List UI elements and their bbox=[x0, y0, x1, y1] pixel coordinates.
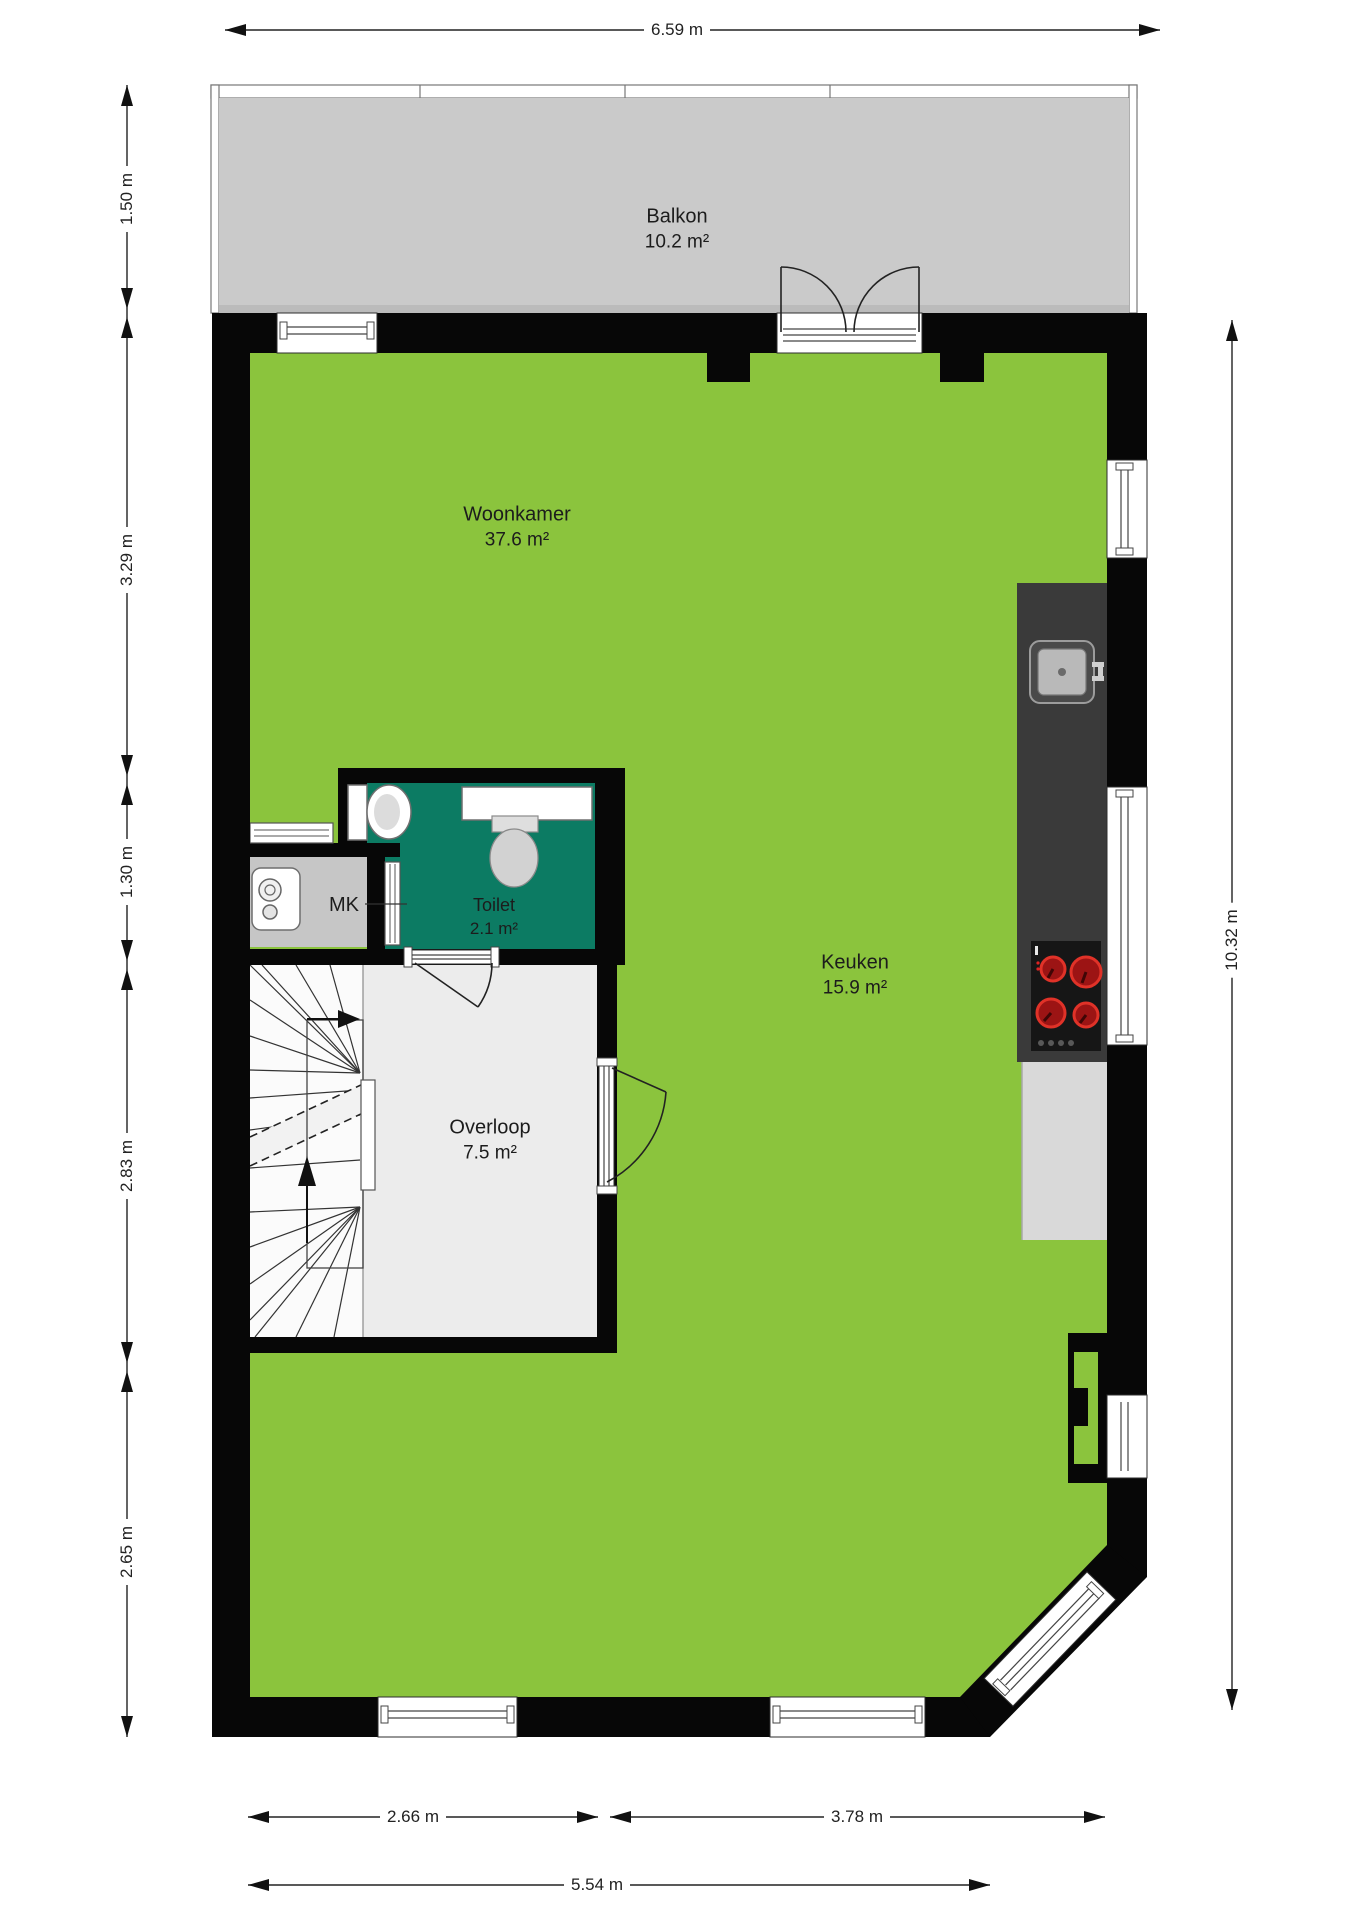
window-right-1 bbox=[1107, 460, 1147, 558]
window-top bbox=[277, 313, 377, 353]
radiator-icon bbox=[250, 823, 333, 843]
boiler-icon bbox=[252, 868, 300, 930]
wall-left bbox=[212, 313, 250, 1737]
balcony-railing-left bbox=[211, 85, 219, 313]
room-area: 10.2 m² bbox=[645, 230, 709, 255]
room-name: Toilet bbox=[470, 894, 518, 918]
room-area: 15.9 m² bbox=[821, 976, 889, 1001]
room-label-balkon: Balkon 10.2 m² bbox=[645, 203, 709, 254]
kitchen-sink-icon bbox=[1030, 641, 1104, 703]
dim-left-1: 1.50 m bbox=[116, 166, 138, 232]
overloop-stairs-block bbox=[250, 965, 597, 1337]
room-label-keuken: Keuken 15.9 m² bbox=[821, 949, 889, 1000]
washbasin-icon bbox=[348, 785, 411, 840]
room-area: 2.1 m² bbox=[470, 918, 518, 940]
window-right-3 bbox=[1107, 1395, 1147, 1478]
room-name: Overloop bbox=[449, 1114, 530, 1140]
wall-overloop-bottom bbox=[250, 1337, 617, 1353]
balcony-railing-right bbox=[1129, 85, 1137, 313]
room-label-overloop: Overloop 7.5 m² bbox=[449, 1114, 530, 1165]
room-label-toilet: Toilet 2.1 m² bbox=[470, 894, 518, 940]
dim-left-5: 2.65 m bbox=[116, 1519, 138, 1585]
dim-bottom-1: 2.66 m bbox=[380, 1806, 446, 1828]
room-name: MK bbox=[329, 892, 359, 918]
wall-stub-left bbox=[707, 353, 750, 382]
wall-stub-right bbox=[940, 353, 984, 382]
floorplan-canvas: Balkon 10.2 m² Woonkamer 37.6 m² Toilet … bbox=[0, 0, 1358, 1920]
room-area: 7.5 m² bbox=[449, 1141, 530, 1166]
dim-bottom-2: 3.78 m bbox=[824, 1806, 890, 1828]
window-bottom-1 bbox=[378, 1697, 517, 1737]
kitchen-cabinet bbox=[1022, 1062, 1107, 1240]
floorplan-drawing bbox=[0, 0, 1358, 1920]
room-name: Balkon bbox=[645, 203, 709, 229]
room-name: Keuken bbox=[821, 949, 889, 975]
dim-right: 10.32 m bbox=[1221, 902, 1243, 977]
cooktop-icon bbox=[1031, 941, 1101, 1051]
balcony-railing-top bbox=[211, 85, 1137, 98]
room-area: 37.6 m² bbox=[463, 528, 570, 553]
dim-top: 6.59 m bbox=[644, 19, 710, 41]
window-bottom-2 bbox=[770, 1697, 925, 1737]
window-right-2 bbox=[1107, 787, 1147, 1045]
duct-shaft bbox=[1068, 1333, 1108, 1483]
dim-bottom-total: 5.54 m bbox=[564, 1874, 630, 1896]
balcony bbox=[211, 85, 1137, 313]
dim-left-2: 3.29 m bbox=[116, 527, 138, 593]
room-label-woonkamer: Woonkamer 37.6 m² bbox=[463, 501, 570, 552]
room-label-mk: MK bbox=[329, 892, 359, 918]
room-name: Woonkamer bbox=[463, 501, 570, 527]
dim-left-3: 1.30 m bbox=[116, 839, 138, 905]
kitchen-counter bbox=[1017, 583, 1107, 1240]
dim-left-4: 2.83 m bbox=[116, 1133, 138, 1199]
